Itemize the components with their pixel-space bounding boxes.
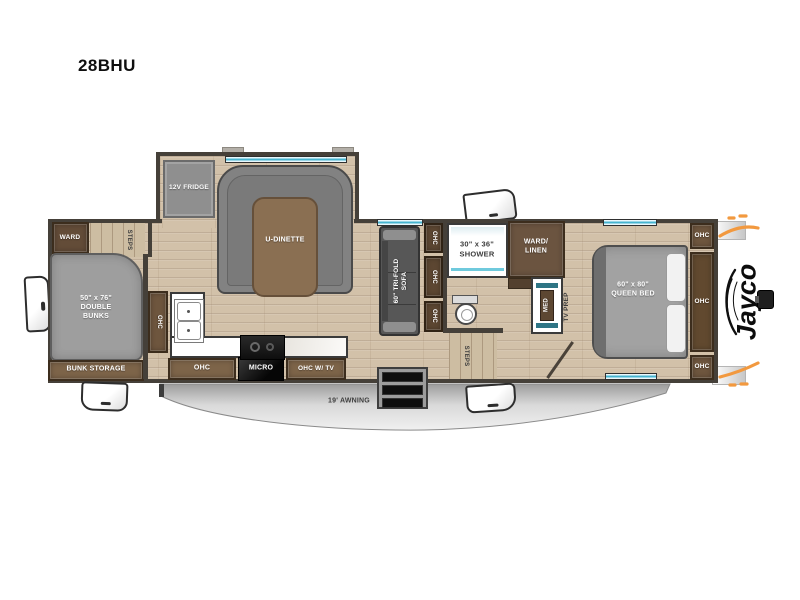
med-counter-strip [536,283,558,288]
orange-accent-bottom-icon [714,360,764,392]
fridge-label: 12V FRIDGE [169,184,209,192]
living-ohc-2-label: OHC [429,270,437,284]
bedroom-window-bottom [605,373,657,380]
med-label: MED [543,298,551,312]
kitchen-sink [174,299,204,343]
sink-bowl [177,302,201,321]
living-ohc-1-label: OHC [429,231,437,245]
bedroom-steps-label: STEPS [461,346,469,367]
kitchen-ohc-tv-label: OHC W/ TV [298,365,334,373]
kitchen-ohc-side-label: OHC [154,315,162,329]
door-handle [487,403,498,407]
exterior-door-bottom-left [81,381,129,412]
sofa-window [377,219,423,226]
floorplan-page: 28BHU Jayco 19' AWNING [0,0,800,600]
toilet [455,303,477,325]
shower-threshold [451,268,504,271]
bunk-steps-area [90,223,145,257]
floorplan-title: 28BHU [78,56,136,76]
door-handle [101,402,111,405]
hitch-notch [755,296,759,303]
burner [266,343,274,351]
bunk-steps-label: STEPS [124,230,132,251]
pillow [666,253,686,302]
sofa-back [382,241,388,321]
ward-label: WARD [60,234,81,242]
step-tread [382,385,423,395]
shower-label: 30" x 36" SHOWER [460,239,495,259]
pillow [666,304,686,353]
door-handle [489,213,498,217]
shower-text: SHOWER [460,249,495,259]
sink-drain [187,310,190,313]
hitch [757,290,774,309]
sofa-armrest [383,322,416,332]
queen-bed [592,245,688,359]
bunks-label: 50" x 76" DOUBLE BUNKS [80,295,112,321]
sofa-seam [388,304,416,305]
bedroom-window-top [603,219,657,226]
bedroom-ohc-bottom-label: OHC [694,363,709,371]
awning-label: 19' AWNING [328,398,370,407]
slideout-window [225,156,347,163]
microwave-label: MICRO [249,365,273,374]
bunk-storage-label: BUNK STORAGE [66,366,125,375]
stove-cooktop [240,335,285,360]
exterior-storage-door [465,382,517,413]
bed-label: 60" x 80" QUEEN BED [611,281,654,299]
bedroom-steps-area [449,333,497,379]
dinette-label: U-DINETTE [265,237,304,246]
dinette-table [252,197,318,297]
step-tread [382,372,423,382]
orange-accent-top-icon [714,210,764,242]
step-tread [382,398,423,408]
bedroom-ohc-mid-label: OHC [694,298,709,306]
kitchen-ohc-lower-label: OHC [194,365,210,374]
bed-text: QUEEN BED [611,290,654,299]
wall-bath-bottom [443,328,503,333]
ward-linen-line1: WARD/ [524,238,548,247]
bedroom-ohc-top-label: OHC [694,232,709,240]
toilet-bowl [461,309,473,321]
bed-foot [594,247,606,357]
wall-bunkroom-top [148,223,152,257]
bunks-size: 50" x 76" [80,295,112,304]
tv-prep-label: TV PREP [563,292,571,321]
ward-linen-line2: LINEN [524,247,548,256]
sofa-label: 60" TRI-FOLD SOFA [393,259,409,304]
living-ohc-3-label: OHC [429,309,437,323]
bed-size: 60" x 80" [611,281,654,290]
entry-steps [377,367,428,409]
sofa-label-line2: SOFA [401,259,409,304]
shower-glass [451,227,504,236]
sofa-label-line1: 60" TRI-FOLD [393,259,401,304]
bunks-line3: BUNKS [80,312,112,321]
sofa-armrest [383,230,416,240]
door-handle [41,302,45,311]
sink-drain [187,329,190,332]
bunks-line2: DOUBLE [80,304,112,313]
med-counter-strip [536,323,558,328]
shower-size: 30" x 36" [460,239,495,249]
ward-linen-label: WARD/ LINEN [524,238,548,256]
sink-bowl [177,321,201,340]
burner [250,342,260,352]
